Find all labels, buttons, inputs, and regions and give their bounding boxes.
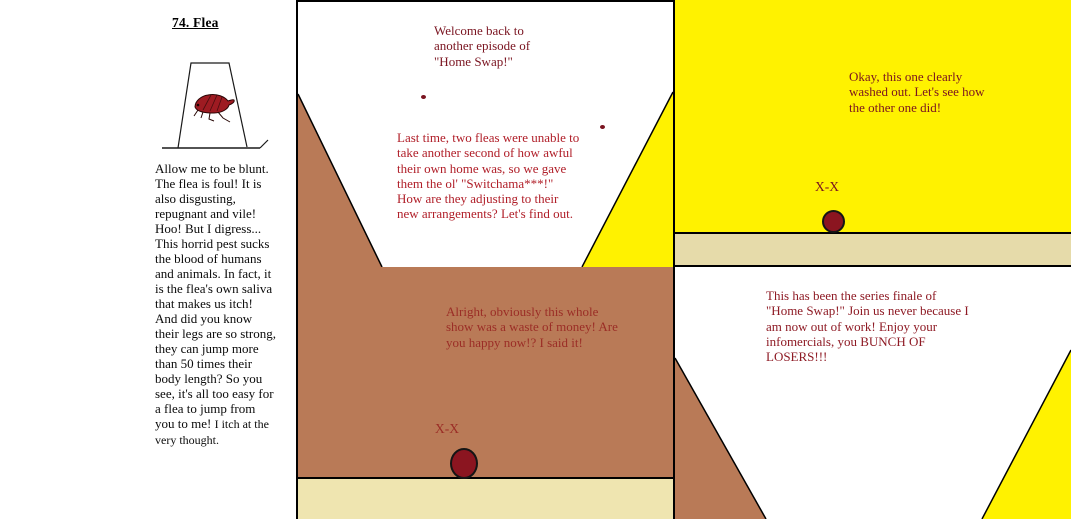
flea-drawing-icon xyxy=(194,94,234,122)
brown-wall-wedge xyxy=(675,358,766,519)
ground-strip xyxy=(675,232,1071,265)
tiny-flea-2 xyxy=(600,125,605,129)
tiny-flea-1 xyxy=(421,95,426,99)
speech-series-finale: This has been the series finale of "Home… xyxy=(766,288,969,364)
speech-washed-out: Okay, this one clearly washed out. Let's… xyxy=(849,69,985,115)
yellow-wall-wedge xyxy=(982,350,1071,519)
speech-waste-of-money: Alright, obviously this whole show was a… xyxy=(446,304,618,350)
flea-eyes-label: X-X xyxy=(815,179,839,195)
comic-title: 74. Flea xyxy=(172,15,219,31)
comic-page: 74. Flea Allow me to be blunt. The flea … xyxy=(0,0,1071,519)
dead-flea-icon xyxy=(450,448,478,479)
ground-strip xyxy=(298,477,673,519)
narration-last-time: Last time, two fleas were unable to take… xyxy=(397,130,579,222)
flea-eyes-label: X-X xyxy=(435,421,459,437)
panel-top-right: Okay, this one clearly washed out. Let's… xyxy=(675,0,1071,265)
brown-wall-wedge xyxy=(298,94,382,267)
yellow-wall-wedge xyxy=(582,92,673,267)
dead-flea-icon xyxy=(822,210,845,233)
panel-top-middle: Welcome back to another episode of "Home… xyxy=(298,0,673,267)
panel-bottom-right: This has been the series finale of "Home… xyxy=(675,267,1071,519)
intro-paragraph-main: Allow me to be blunt. The flea is foul! … xyxy=(155,161,276,431)
narration-welcome: Welcome back to another episode of "Home… xyxy=(434,23,530,69)
flea-under-lampshade-illustration xyxy=(155,55,275,153)
left-column: 74. Flea Allow me to be blunt. The flea … xyxy=(0,0,296,519)
panel-bottom-middle: Alright, obviously this whole show was a… xyxy=(298,267,673,519)
